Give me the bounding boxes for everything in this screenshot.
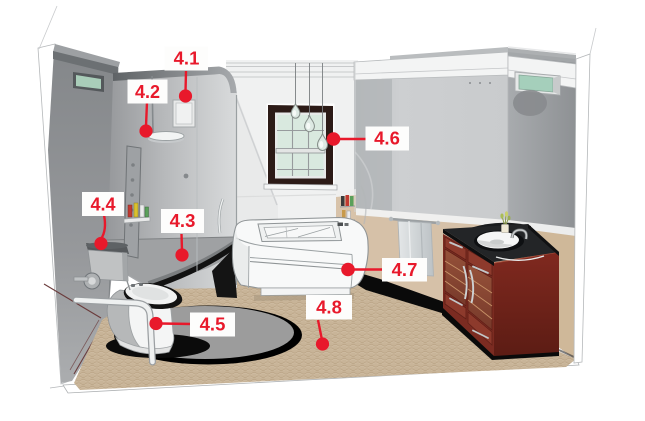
svg-text:4.4: 4.4 bbox=[90, 195, 115, 215]
svg-text:4.6: 4.6 bbox=[374, 128, 400, 149]
svg-text:4.2: 4.2 bbox=[135, 82, 160, 102]
svg-text:4.3: 4.3 bbox=[170, 210, 196, 231]
svg-text:4.7: 4.7 bbox=[392, 259, 418, 280]
svg-text:4.8: 4.8 bbox=[316, 297, 342, 318]
svg-text:4.5: 4.5 bbox=[200, 314, 226, 335]
svg-text:4.1: 4.1 bbox=[174, 48, 200, 69]
